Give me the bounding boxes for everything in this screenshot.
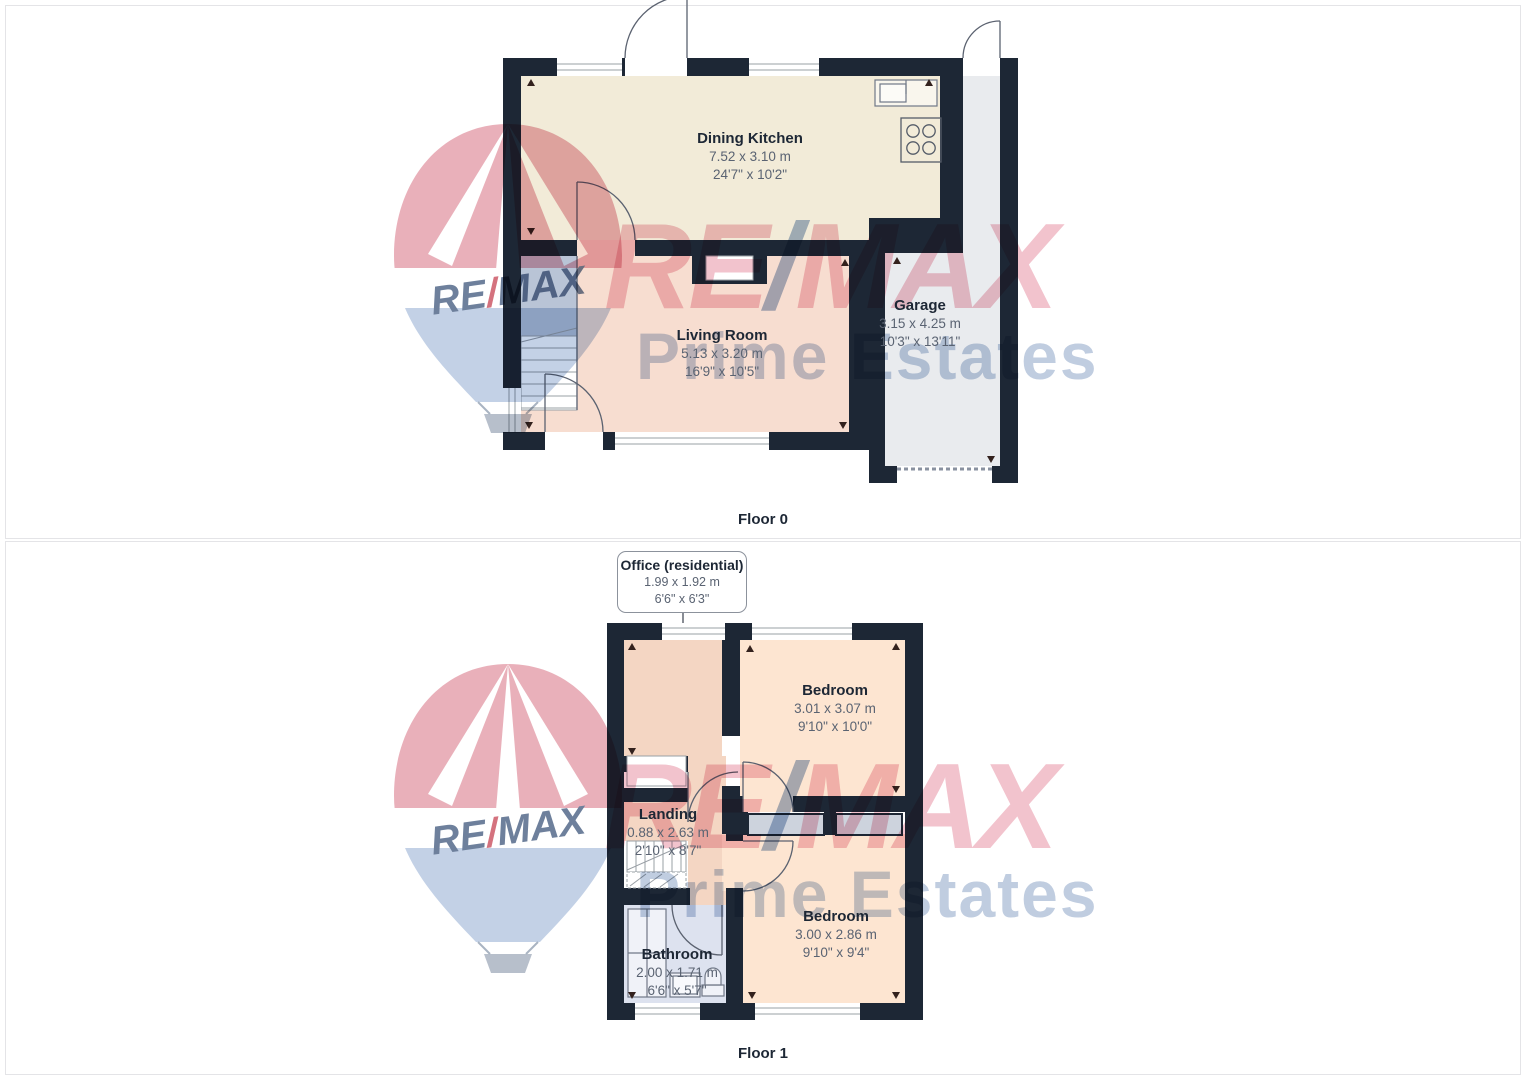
office-callout: Office (residential) 1.99 x 1.92 m 6'6" … (617, 551, 747, 613)
room-office (624, 640, 722, 756)
room-label-bedroom-bottom: Bedroom 3.00 x 2.86 m 9'10" x 9'4" (795, 908, 877, 962)
floor0-label: Floor 0 (738, 511, 788, 528)
room-label-bedroom-top: Bedroom 3.01 x 3.07 m 9'10" x 10'0" (794, 682, 876, 736)
wardrobe-left (748, 814, 824, 835)
remax-balloon-logo: RE/MAX (378, 658, 638, 973)
chimney-recess (706, 256, 753, 280)
room-label-garage: Garage 3.15 x 4.25 m 10'3" x 13'11" (879, 297, 961, 351)
room-label-landing: Landing 0.88 x 2.63 m 2'10" x 8'7" (627, 806, 709, 860)
wardrobe-right (836, 814, 902, 835)
remax-balloon-logo: RE/MAX (378, 118, 638, 433)
floor1-label: Floor 1 (738, 1045, 788, 1062)
room-label-bathroom: Bathroom 2.00 x 1.71 m 6'6" x 5'7" (636, 946, 718, 1000)
floorplan-page: { "watermark": { "re": "RE", "slash": "/… (0, 0, 1527, 1080)
room-label-dining-kitchen: Dining Kitchen 7.52 x 3.10 m 24'7" x 10'… (697, 130, 803, 184)
room-label-living-room: Living Room 5.13 x 3.20 m 16'9" x 10'5" (677, 327, 768, 381)
